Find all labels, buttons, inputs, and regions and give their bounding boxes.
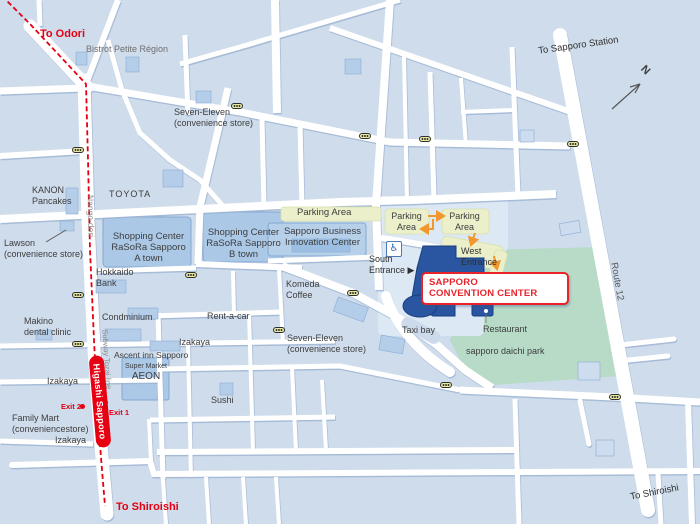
traffic-light-icon bbox=[567, 141, 579, 147]
traffic-light-icon bbox=[273, 327, 285, 333]
parking-area-top-label: Parking Area bbox=[297, 207, 351, 218]
restaurant-wing bbox=[472, 303, 493, 316]
accessibility-icon: ♿ bbox=[386, 241, 402, 257]
traffic-light-icon bbox=[609, 394, 621, 400]
to-shiroishi-subway-label: To Shiroishi bbox=[116, 501, 179, 514]
toyota-label: TOYOTA bbox=[109, 189, 151, 200]
west-entrance-label: West Entrance bbox=[461, 246, 497, 267]
traffic-light-icon bbox=[72, 147, 84, 153]
restaurant-marker bbox=[484, 309, 488, 313]
to-odori-label: To Odori bbox=[40, 28, 85, 41]
aeon-label: AEON bbox=[120, 371, 172, 383]
convention-center-label: SAPPORO CONVENTION CENTER bbox=[429, 277, 563, 300]
traffic-light-icon bbox=[440, 382, 452, 388]
ascent-inn-label: Ascent inn Sapporo bbox=[114, 350, 188, 360]
seven-eleven-south-label: Seven-Eleven (convenience store) bbox=[287, 333, 366, 354]
exit-2-dot bbox=[80, 404, 85, 409]
traffic-light-icon bbox=[72, 341, 84, 347]
exit-2-label: Exit 2 bbox=[61, 403, 81, 412]
super-market-label: Super Market bbox=[120, 363, 172, 371]
exit-1-label: Exit 1 bbox=[109, 409, 129, 418]
bistrot-label: Bistrot Petite Région bbox=[86, 44, 168, 55]
innovation-center-label: Sapporo Business Innovation Center bbox=[274, 226, 371, 248]
traffic-light-icon bbox=[185, 272, 197, 278]
makino-label: Makino dental clinic bbox=[24, 316, 71, 337]
exit-1-dot bbox=[103, 400, 108, 405]
taxi-bay-label: Taxi bay bbox=[402, 325, 435, 336]
south-entrance-label: South Entrance ▶ bbox=[369, 254, 414, 275]
rasora-a-label: Shopping Center RaSoRa Sapporo A town bbox=[106, 231, 191, 265]
rent-a-car-label: Rent-a-car bbox=[207, 311, 250, 322]
daichi-park-label: sapporo daichi park bbox=[466, 346, 545, 357]
traffic-light-icon bbox=[359, 133, 371, 139]
parking-area-2-label: Parking Area bbox=[446, 211, 483, 232]
nango-dori-label: Nango-dori bbox=[85, 176, 96, 256]
komeda-label: Komeda Coffee bbox=[286, 279, 320, 300]
kanon-label: KANON Pancakes bbox=[32, 185, 72, 206]
sushi-label: Sushi bbox=[211, 395, 234, 406]
traffic-light-icon bbox=[347, 290, 359, 296]
traffic-light-icon bbox=[72, 292, 84, 298]
family-mart-label: Family Mart (conveniencestore) bbox=[12, 413, 89, 434]
parking-area-1-label: Parking Area bbox=[388, 211, 425, 232]
izakaya-sw-label: Izakaya bbox=[55, 435, 86, 446]
traffic-light-icon bbox=[231, 103, 243, 109]
izakaya-ne-label: Izakaya bbox=[179, 337, 210, 348]
lawson-label: Lawson (convenience store) bbox=[4, 238, 83, 259]
traffic-light-icon bbox=[419, 136, 431, 142]
restaurant-label: Restaurant bbox=[483, 324, 527, 335]
izakaya-w-label: Izakaya bbox=[47, 376, 78, 387]
seven-eleven-north-label: Seven-Eleven (convenience store) bbox=[174, 107, 253, 128]
condminium-label: Condminium bbox=[102, 312, 153, 323]
hokkaido-bank-label: Hokkaido Bank bbox=[96, 267, 134, 288]
convention-center-label-box: SAPPORO CONVENTION CENTER bbox=[421, 272, 569, 305]
sapporo-access-map: To Odori Bistrot Petite Région To Sappor… bbox=[0, 0, 700, 524]
